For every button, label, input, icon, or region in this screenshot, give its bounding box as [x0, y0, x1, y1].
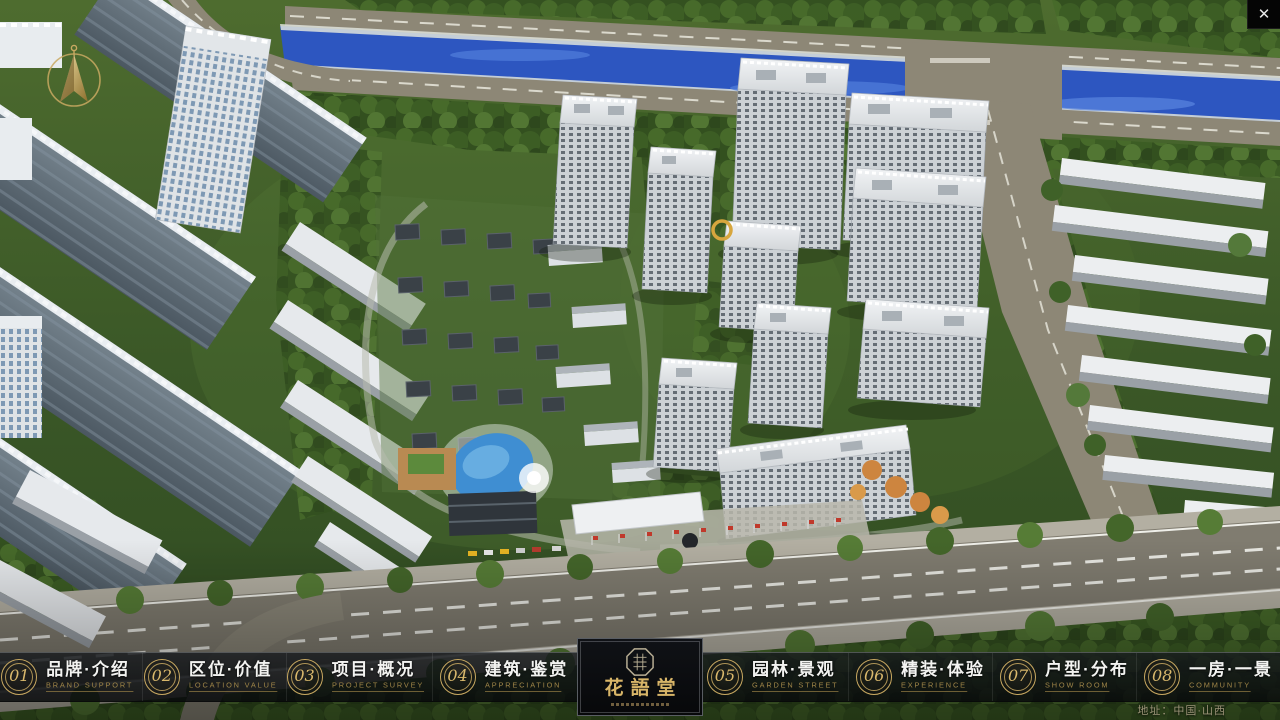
nav-label-en: LOCATION VALUE — [189, 681, 277, 692]
nav-item-brand[interactable]: 01 品牌·介绍BRAND SUPPORT — [0, 653, 142, 701]
nav-number: 06 — [864, 668, 884, 684]
nav-item-views[interactable]: 08 一房·一景COMMUNITY — [1136, 653, 1280, 701]
close-button[interactable]: ✕ — [1247, 0, 1280, 29]
nav-item-floorplan[interactable]: 07 户型·分布SHOW ROOM — [992, 653, 1136, 701]
nav-label-zh: 建筑·鉴赏 — [485, 661, 569, 679]
address-label: 地址：中国·山西 — [1137, 702, 1226, 718]
nav-number: 05 — [715, 668, 735, 684]
project-name: 花語堂 — [597, 678, 682, 699]
close-icon: ✕ — [1258, 5, 1271, 23]
nav-label-zh: 园林·景观 — [752, 661, 836, 679]
nav-number-badge: 07 — [1000, 659, 1036, 695]
nav-label-en: GARDEN STREET — [752, 681, 838, 692]
nav-label-en: APPRECIATION — [485, 681, 561, 692]
nav-number-badge: 01 — [1, 659, 37, 695]
nav-label-en: EXPERIENCE — [901, 681, 967, 692]
nav-number-badge: 02 — [144, 659, 180, 695]
nav-number: 01 — [9, 668, 29, 684]
nav-label-zh: 户型·分布 — [1045, 661, 1129, 679]
nav-label-zh: 一房·一景 — [1189, 661, 1273, 679]
nav-number-badge: 06 — [856, 659, 892, 695]
masterplan-render[interactable] — [0, 0, 1280, 720]
nav-number: 08 — [1152, 668, 1172, 684]
nav-number-badge: 03 — [287, 659, 323, 695]
nav-label-en: BRAND SUPPORT — [46, 681, 133, 692]
nav-label-zh: 区位·价值 — [189, 661, 273, 679]
seal-icon — [626, 648, 654, 676]
nav-label-en: SHOW ROOM — [1045, 681, 1109, 692]
nav-item-interior[interactable]: 06 精装·体验EXPERIENCE — [848, 653, 992, 701]
nav-number: 02 — [152, 668, 172, 684]
nav-label-zh: 精装·体验 — [901, 661, 985, 679]
nav-group-left: 01 品牌·介绍BRAND SUPPORT 02 区位·价值LOCATION V… — [0, 653, 575, 701]
nav-item-location[interactable]: 02 区位·价值LOCATION VALUE — [142, 653, 285, 701]
nav-label-zh: 项目·概况 — [332, 661, 416, 679]
nav-number-badge: 04 — [440, 659, 476, 695]
nav-number: 03 — [294, 668, 314, 684]
nav-group-right: 05 园林·景观GARDEN STREET 06 精装·体验EXPERIENCE… — [705, 653, 1280, 701]
nav-number-badge: 08 — [1144, 659, 1180, 695]
project-logo[interactable]: 花語堂 — [577, 638, 703, 716]
nav-number: 04 — [447, 668, 467, 684]
nav-item-architecture[interactable]: 04 建筑·鉴赏APPRECIATION — [432, 653, 575, 701]
clubhouse-roof — [448, 491, 537, 536]
nav-number: 07 — [1008, 668, 1028, 684]
nav-label-zh: 品牌·介绍 — [46, 661, 130, 679]
nav-label-en: COMMUNITY — [1189, 681, 1251, 692]
masterplan-svg — [0, 0, 1280, 720]
nav-label-en: PROJECT SURVEY — [332, 681, 424, 692]
nav-item-project[interactable]: 03 项目·概况PROJECT SURVEY — [286, 653, 432, 701]
logo-tagline — [611, 703, 669, 706]
nav-number-badge: 05 — [707, 659, 743, 695]
nav-item-garden[interactable]: 05 园林·景观GARDEN STREET — [705, 653, 848, 701]
